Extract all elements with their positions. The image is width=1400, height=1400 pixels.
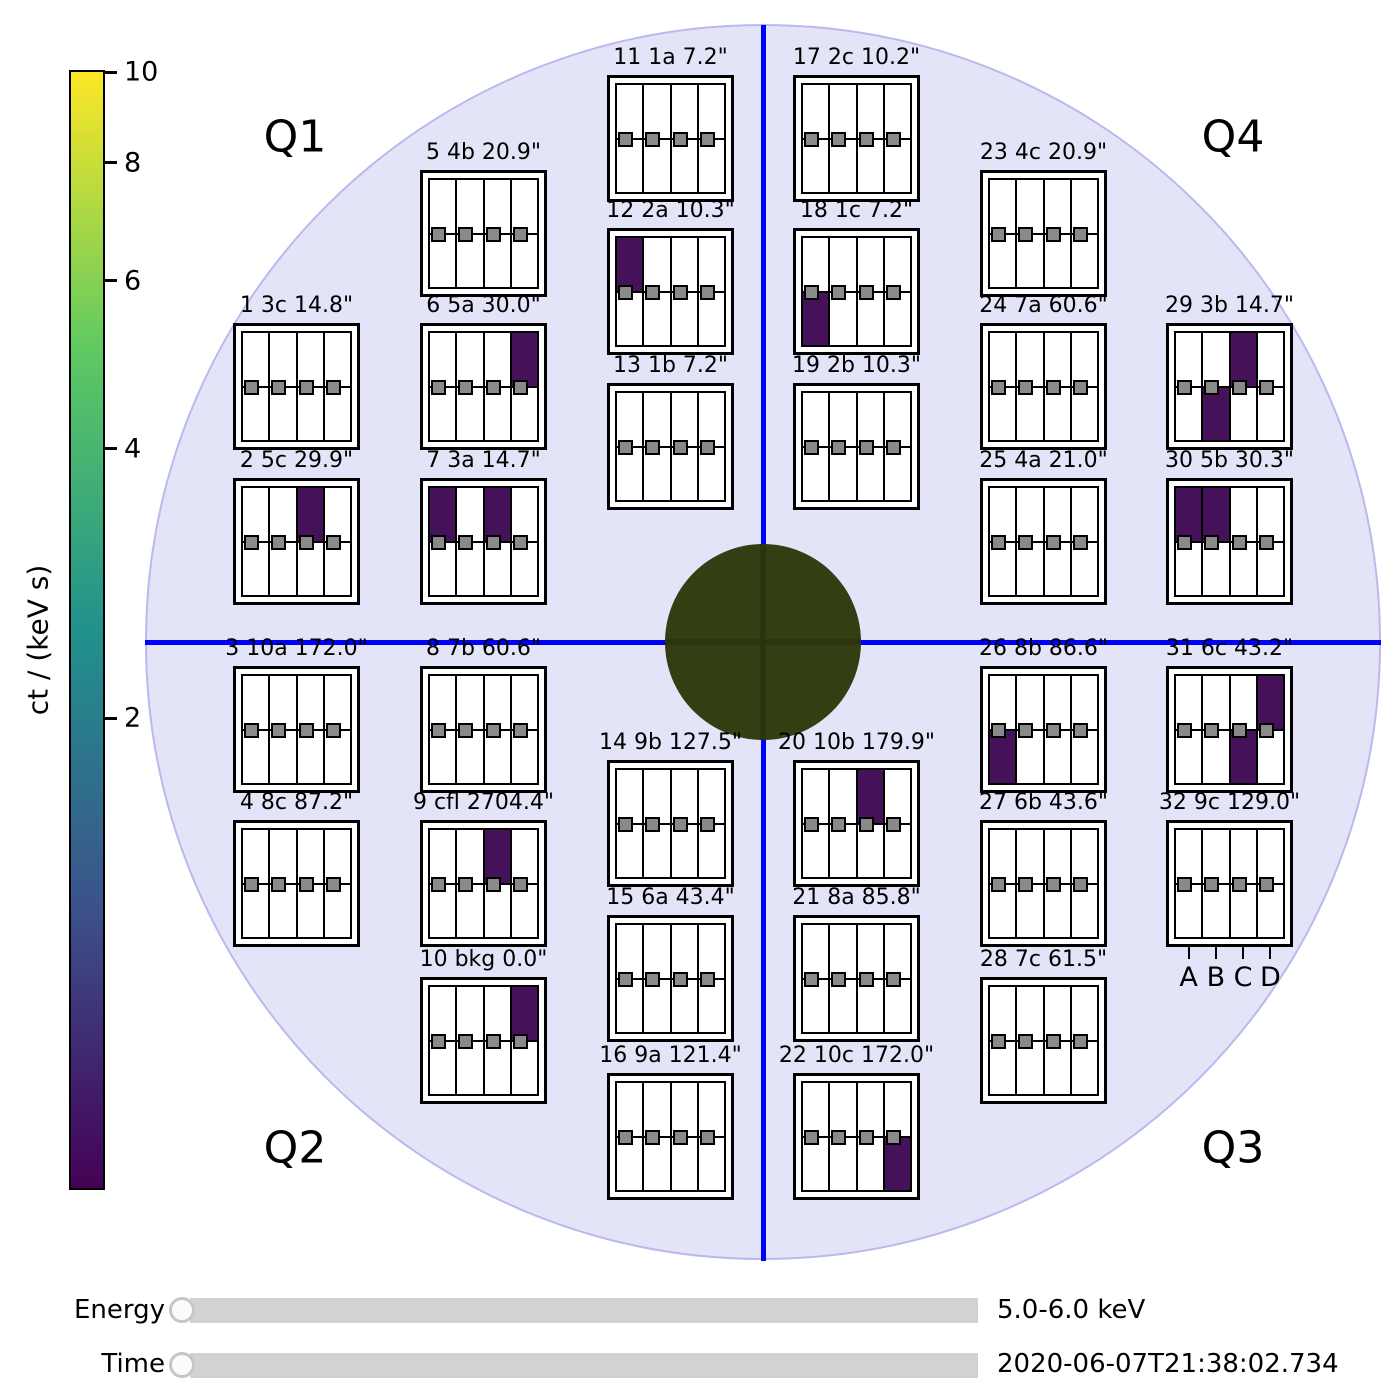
colorbar-tick bbox=[104, 161, 117, 164]
small-pixel-marker bbox=[326, 723, 341, 738]
pixel-column-d bbox=[885, 393, 910, 500]
detector-title-9: 9 cfl 2704.4" bbox=[374, 790, 594, 816]
small-pixel-marker bbox=[1177, 723, 1192, 738]
small-pixel-marker bbox=[673, 817, 688, 832]
pixel-column-d bbox=[885, 770, 910, 877]
pixel-column-a bbox=[617, 925, 644, 1032]
small-pixel-marker bbox=[1018, 1034, 1033, 1049]
pixel-column-a bbox=[243, 676, 270, 783]
small-pixel-marker bbox=[886, 132, 901, 147]
pixel-column-c bbox=[485, 830, 512, 937]
small-pixel-marker bbox=[804, 285, 819, 300]
detector-title-6: 6 5a 30.0" bbox=[374, 293, 594, 319]
detector-pixel-area bbox=[241, 828, 352, 939]
detector-title-23: 23 4c 20.9" bbox=[934, 140, 1154, 166]
pixel-column-a bbox=[617, 1083, 644, 1190]
pixel-column-c bbox=[298, 676, 325, 783]
small-pixel-marker bbox=[1046, 380, 1061, 395]
small-pixel-marker bbox=[271, 380, 286, 395]
small-pixel-marker bbox=[1046, 723, 1061, 738]
small-pixel-marker bbox=[700, 440, 715, 455]
pixel-column-a bbox=[243, 333, 270, 440]
detector-box-21 bbox=[793, 915, 920, 1042]
small-pixel-marker bbox=[458, 227, 473, 242]
pixel-column-b bbox=[830, 85, 857, 192]
pixel-column-c bbox=[858, 770, 885, 877]
quadrant-label-q4: Q4 bbox=[1202, 112, 1265, 163]
pixel-column-a bbox=[803, 770, 830, 877]
small-pixel-marker bbox=[804, 972, 819, 987]
large-pixel-fill-c-top bbox=[1231, 333, 1256, 387]
time-slider-handle[interactable] bbox=[169, 1352, 195, 1378]
pixel-column-a bbox=[803, 925, 830, 1032]
pixel-column-b bbox=[1017, 333, 1044, 440]
pixel-column-a bbox=[990, 488, 1017, 595]
pixel-column-c bbox=[858, 85, 885, 192]
pixel-column-c bbox=[858, 925, 885, 1032]
pixel-column-d bbox=[1258, 830, 1283, 937]
detector-box-8 bbox=[420, 666, 547, 793]
small-pixel-marker bbox=[244, 535, 259, 550]
small-pixel-marker bbox=[831, 285, 846, 300]
pixel-column-tick bbox=[1269, 947, 1271, 959]
pixel-column-a bbox=[990, 180, 1017, 287]
pixel-column-c bbox=[298, 830, 325, 937]
pixel-column-b bbox=[1017, 488, 1044, 595]
detector-title-22: 22 10c 172.0" bbox=[747, 1043, 967, 1069]
pixel-column-c bbox=[672, 925, 699, 1032]
center-aperture-circle bbox=[665, 544, 861, 740]
pixel-column-c bbox=[672, 393, 699, 500]
small-pixel-marker bbox=[831, 972, 846, 987]
time-slider-value: 2020-06-07T21:38:02.734 bbox=[997, 1348, 1339, 1380]
pixel-column-d bbox=[512, 830, 537, 937]
pixel-column-c bbox=[672, 770, 699, 877]
small-pixel-marker bbox=[831, 817, 846, 832]
pixel-column-a bbox=[617, 393, 644, 500]
small-pixel-marker bbox=[1046, 535, 1061, 550]
detector-pixel-area bbox=[428, 985, 539, 1096]
pixel-column-tick bbox=[1188, 947, 1190, 959]
pixel-column-d bbox=[1072, 488, 1097, 595]
detector-title-28: 28 7c 61.5" bbox=[934, 947, 1154, 973]
small-pixel-marker bbox=[645, 440, 660, 455]
detector-box-14 bbox=[607, 760, 734, 887]
large-pixel-fill-d-top bbox=[1258, 676, 1283, 730]
detector-title-32: 32 9c 129.0" bbox=[1120, 790, 1340, 816]
detector-title-20: 20 10b 179.9" bbox=[747, 730, 967, 756]
small-pixel-marker bbox=[1204, 535, 1219, 550]
pixel-column-d bbox=[1258, 333, 1283, 440]
small-pixel-marker bbox=[1018, 380, 1033, 395]
pixel-column-c bbox=[485, 333, 512, 440]
pixel-column-b bbox=[644, 85, 671, 192]
detector-pixel-area bbox=[801, 768, 912, 879]
small-pixel-marker bbox=[271, 723, 286, 738]
small-pixel-marker bbox=[513, 1034, 528, 1049]
time-slider-track[interactable] bbox=[190, 1353, 978, 1378]
pixel-column-d bbox=[1072, 180, 1097, 287]
pixel-column-b bbox=[644, 238, 671, 345]
detector-box-18 bbox=[793, 228, 920, 355]
small-pixel-marker bbox=[458, 877, 473, 892]
small-pixel-marker bbox=[804, 817, 819, 832]
colorbar-tick-label: 8 bbox=[124, 147, 141, 178]
detector-pixel-area bbox=[801, 923, 912, 1034]
small-pixel-marker bbox=[458, 723, 473, 738]
pixel-column-d bbox=[885, 1083, 910, 1190]
small-pixel-marker bbox=[645, 132, 660, 147]
detector-box-26 bbox=[980, 666, 1107, 793]
large-pixel-fill-d-bottom bbox=[885, 1137, 910, 1191]
small-pixel-marker bbox=[271, 535, 286, 550]
pixel-column-d bbox=[885, 925, 910, 1032]
small-pixel-marker bbox=[859, 440, 874, 455]
small-pixel-marker bbox=[513, 380, 528, 395]
small-pixel-marker bbox=[618, 132, 633, 147]
small-pixel-marker bbox=[700, 972, 715, 987]
detector-box-4 bbox=[233, 820, 360, 947]
pixel-column-label-d: D bbox=[1260, 962, 1281, 993]
pixel-column-c bbox=[1231, 333, 1258, 440]
small-pixel-marker bbox=[486, 1034, 501, 1049]
pixel-column-tick bbox=[1215, 947, 1217, 959]
detector-box-10 bbox=[420, 977, 547, 1104]
small-pixel-marker bbox=[326, 877, 341, 892]
colorbar-tick bbox=[104, 447, 117, 450]
small-pixel-marker bbox=[486, 535, 501, 550]
detector-pixel-area bbox=[988, 674, 1099, 785]
energy-slider-handle[interactable] bbox=[169, 1297, 195, 1323]
quadrant-label-q2: Q2 bbox=[264, 1123, 327, 1174]
detector-box-1 bbox=[233, 323, 360, 450]
pixel-column-c bbox=[672, 85, 699, 192]
detector-pixel-area bbox=[428, 331, 539, 442]
colorbar-tick-label: 6 bbox=[124, 265, 141, 296]
pixel-column-a bbox=[617, 238, 644, 345]
small-pixel-marker bbox=[431, 535, 446, 550]
detector-title-31: 31 6c 43.2" bbox=[1120, 636, 1340, 662]
detector-title-30: 30 5b 30.3" bbox=[1120, 448, 1340, 474]
pixel-column-b bbox=[644, 770, 671, 877]
small-pixel-marker bbox=[1018, 535, 1033, 550]
pixel-column-d bbox=[512, 488, 537, 595]
small-pixel-marker bbox=[673, 1130, 688, 1145]
small-pixel-marker bbox=[991, 1034, 1006, 1049]
detector-pixel-area bbox=[988, 486, 1099, 597]
pixel-column-d bbox=[699, 85, 724, 192]
detector-pixel-area bbox=[615, 923, 726, 1034]
detector-box-27 bbox=[980, 820, 1107, 947]
small-pixel-marker bbox=[1204, 380, 1219, 395]
small-pixel-marker bbox=[618, 1130, 633, 1145]
detector-title-5: 5 4b 20.9" bbox=[374, 140, 594, 166]
pixel-column-a bbox=[990, 676, 1017, 783]
pixel-column-a bbox=[617, 85, 644, 192]
detector-pixel-area bbox=[615, 83, 726, 194]
pixel-column-a bbox=[1176, 488, 1203, 595]
small-pixel-marker bbox=[1204, 723, 1219, 738]
small-pixel-marker bbox=[1177, 535, 1192, 550]
small-pixel-marker bbox=[458, 1034, 473, 1049]
small-pixel-marker bbox=[886, 972, 901, 987]
pixel-column-d bbox=[699, 238, 724, 345]
detector-box-19 bbox=[793, 383, 920, 510]
large-pixel-fill-a-top bbox=[1176, 488, 1201, 542]
small-pixel-marker bbox=[859, 1130, 874, 1145]
pixel-column-b bbox=[1203, 488, 1230, 595]
large-pixel-fill-d-top bbox=[512, 987, 537, 1041]
detector-box-29 bbox=[1166, 323, 1293, 450]
pixel-column-c bbox=[1231, 488, 1258, 595]
detector-pixel-area bbox=[428, 178, 539, 289]
pixel-column-d bbox=[1072, 987, 1097, 1094]
pixel-column-b bbox=[457, 830, 484, 937]
pixel-column-d bbox=[699, 770, 724, 877]
pixel-column-a bbox=[803, 393, 830, 500]
detector-pixel-area bbox=[988, 178, 1099, 289]
colorbar-tick-label: 2 bbox=[124, 703, 141, 734]
pixel-column-c bbox=[1045, 488, 1072, 595]
small-pixel-marker bbox=[831, 440, 846, 455]
large-pixel-fill-b-top bbox=[1203, 488, 1228, 542]
detector-title-10: 10 bkg 0.0" bbox=[374, 947, 594, 973]
pixel-column-b bbox=[1017, 180, 1044, 287]
small-pixel-marker bbox=[1018, 877, 1033, 892]
detector-box-2 bbox=[233, 478, 360, 605]
pixel-column-d bbox=[512, 333, 537, 440]
small-pixel-marker bbox=[326, 380, 341, 395]
small-pixel-marker bbox=[513, 877, 528, 892]
pixel-column-b bbox=[830, 393, 857, 500]
pixel-column-b bbox=[270, 333, 297, 440]
pixel-column-b bbox=[830, 1083, 857, 1190]
small-pixel-marker bbox=[831, 1130, 846, 1145]
detector-pixel-area bbox=[615, 236, 726, 347]
detector-box-23 bbox=[980, 170, 1107, 297]
large-pixel-fill-a-top bbox=[430, 488, 455, 542]
pixel-column-d bbox=[699, 1083, 724, 1190]
detector-pixel-area bbox=[428, 486, 539, 597]
detector-box-13 bbox=[607, 383, 734, 510]
small-pixel-marker bbox=[513, 227, 528, 242]
pixel-column-c bbox=[298, 333, 325, 440]
small-pixel-marker bbox=[1073, 227, 1088, 242]
small-pixel-marker bbox=[1232, 723, 1247, 738]
small-pixel-marker bbox=[886, 440, 901, 455]
small-pixel-marker bbox=[991, 723, 1006, 738]
detector-pixel-area bbox=[615, 768, 726, 879]
small-pixel-marker bbox=[991, 380, 1006, 395]
pixel-column-a bbox=[990, 830, 1017, 937]
pixel-column-a bbox=[243, 830, 270, 937]
detector-title-21: 21 8a 85.8" bbox=[747, 885, 967, 911]
pixel-column-d bbox=[512, 987, 537, 1094]
pixel-column-c bbox=[485, 180, 512, 287]
small-pixel-marker bbox=[1232, 535, 1247, 550]
small-pixel-marker bbox=[1259, 723, 1274, 738]
colorbar-tick bbox=[104, 71, 117, 74]
detector-box-6 bbox=[420, 323, 547, 450]
pixel-column-d bbox=[512, 180, 537, 287]
small-pixel-marker bbox=[645, 285, 660, 300]
pixel-column-b bbox=[1203, 333, 1230, 440]
pixel-column-b bbox=[1203, 830, 1230, 937]
pixel-column-d bbox=[1258, 488, 1283, 595]
small-pixel-marker bbox=[1046, 227, 1061, 242]
small-pixel-marker bbox=[859, 972, 874, 987]
large-pixel-fill-b-bottom bbox=[1203, 387, 1228, 441]
small-pixel-marker bbox=[1204, 877, 1219, 892]
detector-pixel-area bbox=[801, 1081, 912, 1192]
detector-box-32 bbox=[1166, 820, 1293, 947]
small-pixel-marker bbox=[645, 972, 660, 987]
pixel-column-a bbox=[430, 488, 457, 595]
colorbar-tick-label: 4 bbox=[124, 433, 141, 464]
pixel-column-c bbox=[858, 1083, 885, 1190]
small-pixel-marker bbox=[244, 877, 259, 892]
pixel-column-c bbox=[1231, 830, 1258, 937]
pixel-column-b bbox=[830, 770, 857, 877]
small-pixel-marker bbox=[831, 132, 846, 147]
small-pixel-marker bbox=[700, 1130, 715, 1145]
time-slider-label: Time bbox=[45, 1348, 165, 1380]
small-pixel-marker bbox=[645, 1130, 660, 1145]
pixel-column-b bbox=[830, 238, 857, 345]
pixel-column-d bbox=[1258, 676, 1283, 783]
small-pixel-marker bbox=[1259, 380, 1274, 395]
small-pixel-marker bbox=[486, 723, 501, 738]
detector-pixel-area bbox=[241, 331, 352, 442]
detector-pixel-area bbox=[801, 391, 912, 502]
detector-box-5 bbox=[420, 170, 547, 297]
pixel-column-c bbox=[672, 238, 699, 345]
pixel-column-b bbox=[457, 333, 484, 440]
detector-pixel-area bbox=[988, 331, 1099, 442]
pixel-column-label-a: A bbox=[1179, 962, 1197, 993]
large-pixel-fill-c-bottom bbox=[1231, 730, 1256, 784]
pixel-column-a bbox=[803, 238, 830, 345]
pixel-column-b bbox=[1203, 676, 1230, 783]
small-pixel-marker bbox=[431, 1034, 446, 1049]
small-pixel-marker bbox=[1073, 723, 1088, 738]
pixel-column-a bbox=[430, 333, 457, 440]
small-pixel-marker bbox=[271, 877, 286, 892]
detector-pixel-area bbox=[615, 1081, 726, 1192]
small-pixel-marker bbox=[431, 877, 446, 892]
pixel-column-d bbox=[885, 238, 910, 345]
pixel-column-d bbox=[325, 830, 350, 937]
pixel-column-d bbox=[1072, 830, 1097, 937]
detector-title-29: 29 3b 14.7" bbox=[1120, 293, 1340, 319]
small-pixel-marker bbox=[804, 440, 819, 455]
pixel-column-c bbox=[1045, 987, 1072, 1094]
small-pixel-marker bbox=[804, 132, 819, 147]
pixel-column-d bbox=[699, 925, 724, 1032]
small-pixel-marker bbox=[299, 877, 314, 892]
detector-box-17 bbox=[793, 75, 920, 202]
pixel-column-b bbox=[270, 830, 297, 937]
quadrant-label-q3: Q3 bbox=[1202, 1123, 1265, 1174]
pixel-column-a bbox=[617, 770, 644, 877]
small-pixel-marker bbox=[859, 817, 874, 832]
small-pixel-marker bbox=[1073, 380, 1088, 395]
small-pixel-marker bbox=[886, 285, 901, 300]
detector-box-9 bbox=[420, 820, 547, 947]
pixel-column-b bbox=[270, 676, 297, 783]
detector-pixel-area bbox=[1174, 674, 1285, 785]
detector-pixel-area bbox=[1174, 331, 1285, 442]
detector-box-15 bbox=[607, 915, 734, 1042]
pixel-column-a bbox=[990, 987, 1017, 1094]
small-pixel-marker bbox=[458, 535, 473, 550]
small-pixel-marker bbox=[673, 972, 688, 987]
pixel-column-a bbox=[1176, 333, 1203, 440]
small-pixel-marker bbox=[1073, 1034, 1088, 1049]
energy-slider-label: Energy bbox=[45, 1294, 165, 1326]
small-pixel-marker bbox=[1046, 1034, 1061, 1049]
large-pixel-fill-c-top bbox=[485, 488, 510, 542]
detector-pixel-area bbox=[241, 486, 352, 597]
pixel-column-c bbox=[298, 488, 325, 595]
small-pixel-marker bbox=[991, 877, 1006, 892]
detector-title-19: 19 2b 10.3" bbox=[747, 353, 967, 379]
small-pixel-marker bbox=[673, 440, 688, 455]
small-pixel-marker bbox=[618, 285, 633, 300]
pixel-column-c bbox=[485, 488, 512, 595]
pixel-column-d bbox=[325, 676, 350, 783]
small-pixel-marker bbox=[991, 227, 1006, 242]
pixel-column-c bbox=[1045, 830, 1072, 937]
small-pixel-marker bbox=[431, 380, 446, 395]
pixel-column-c bbox=[858, 393, 885, 500]
detector-box-28 bbox=[980, 977, 1107, 1104]
small-pixel-marker bbox=[1018, 723, 1033, 738]
pixel-column-c bbox=[1231, 676, 1258, 783]
pixel-column-a bbox=[430, 830, 457, 937]
small-pixel-marker bbox=[673, 132, 688, 147]
pixel-column-d bbox=[512, 676, 537, 783]
small-pixel-marker bbox=[1232, 380, 1247, 395]
pixel-column-b bbox=[457, 180, 484, 287]
pixel-column-a bbox=[803, 85, 830, 192]
detector-box-16 bbox=[607, 1073, 734, 1200]
energy-slider-track[interactable] bbox=[190, 1298, 978, 1323]
pixel-column-label-b: B bbox=[1207, 962, 1226, 993]
pixel-column-a bbox=[430, 987, 457, 1094]
detector-pixel-area bbox=[801, 236, 912, 347]
detector-box-30 bbox=[1166, 478, 1293, 605]
pixel-column-d bbox=[325, 333, 350, 440]
detector-box-25 bbox=[980, 478, 1107, 605]
small-pixel-marker bbox=[431, 723, 446, 738]
detector-box-3 bbox=[233, 666, 360, 793]
pixel-column-b bbox=[830, 925, 857, 1032]
pixel-column-c bbox=[672, 1083, 699, 1190]
large-pixel-fill-c-top bbox=[298, 488, 323, 542]
small-pixel-marker bbox=[1018, 227, 1033, 242]
small-pixel-marker bbox=[991, 535, 1006, 550]
small-pixel-marker bbox=[1073, 877, 1088, 892]
pixel-column-d bbox=[325, 488, 350, 595]
small-pixel-marker bbox=[299, 380, 314, 395]
large-pixel-fill-c-top bbox=[485, 830, 510, 884]
detector-box-12 bbox=[607, 228, 734, 355]
small-pixel-marker bbox=[618, 440, 633, 455]
small-pixel-marker bbox=[458, 380, 473, 395]
small-pixel-marker bbox=[1046, 877, 1061, 892]
colorbar-axis-label: ct / (keV s) bbox=[22, 565, 55, 716]
